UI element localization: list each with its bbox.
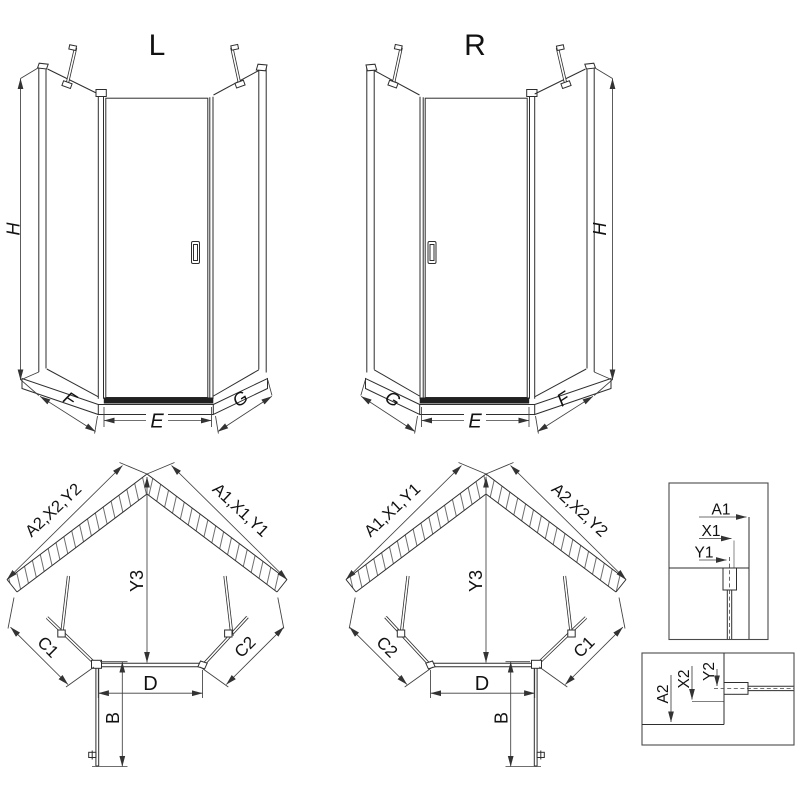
dim-label-x1: X1 [702, 523, 721, 540]
dim-label-a2: A2 [655, 685, 672, 704]
dim-label-c2-left: C2 [231, 633, 260, 662]
plan-right: A1,X1,Y1 A2,X2,Y2 [346, 463, 626, 767]
dim-label-e-left: E [150, 411, 164, 433]
door-panel [104, 97, 214, 404]
dim-label-g-right: G [381, 387, 404, 411]
dim-label-b-left: B [103, 712, 123, 724]
dim-f [536, 380, 613, 434]
left-wall-profile [38, 63, 49, 372]
elevation-left: L [4, 29, 273, 434]
dim-label-d-left: D [143, 673, 157, 695]
left-side-glass [47, 69, 99, 397]
detail-vertical-adjustment: A2 X2 Y2 [642, 653, 794, 745]
diagram-canvas: L [0, 0, 800, 800]
dim-label-h-left: H [4, 222, 24, 236]
door-threshold [104, 398, 214, 404]
left-wall-profile [366, 64, 377, 372]
right-side-glass [535, 63, 596, 397]
dim-label-e-right: E [468, 411, 482, 433]
support-bar-left [388, 44, 402, 88]
dim-label-y3-right: Y3 [466, 570, 486, 592]
left-side-glass [374, 71, 419, 397]
variant-title-right: R [464, 29, 486, 62]
dim-label-g-left: G [229, 387, 252, 411]
open-door [534, 669, 544, 767]
dim-label-a1: A1 [712, 502, 731, 519]
plan-left: A2,X2,Y2 A1,X1,Y1 [7, 463, 287, 767]
dim-label-x2: X2 [676, 670, 693, 689]
detail-horizontal-adjustment: A1 X1 Y1 [669, 483, 768, 640]
dim-label-d-right: D [475, 673, 489, 695]
dim-label-h-right: H [590, 222, 610, 236]
dim-label-b-right: B [492, 712, 512, 724]
door-panel [420, 97, 530, 404]
door-threshold [420, 398, 530, 404]
dim-label-y3-left: Y3 [127, 570, 147, 592]
hinge-post [96, 90, 106, 399]
support-bar-right [231, 44, 245, 88]
dim-label-y2: Y2 [701, 662, 718, 681]
shower-enclosure-technical-diagram: L [0, 0, 800, 800]
dim-label-y1: Y1 [695, 545, 714, 562]
elevation-right: R [361, 29, 613, 434]
dim-f [21, 380, 98, 434]
open-door [89, 669, 99, 767]
variant-title-left: L [149, 29, 166, 62]
hinge-post [527, 90, 537, 399]
right-side-glass [214, 64, 268, 396]
